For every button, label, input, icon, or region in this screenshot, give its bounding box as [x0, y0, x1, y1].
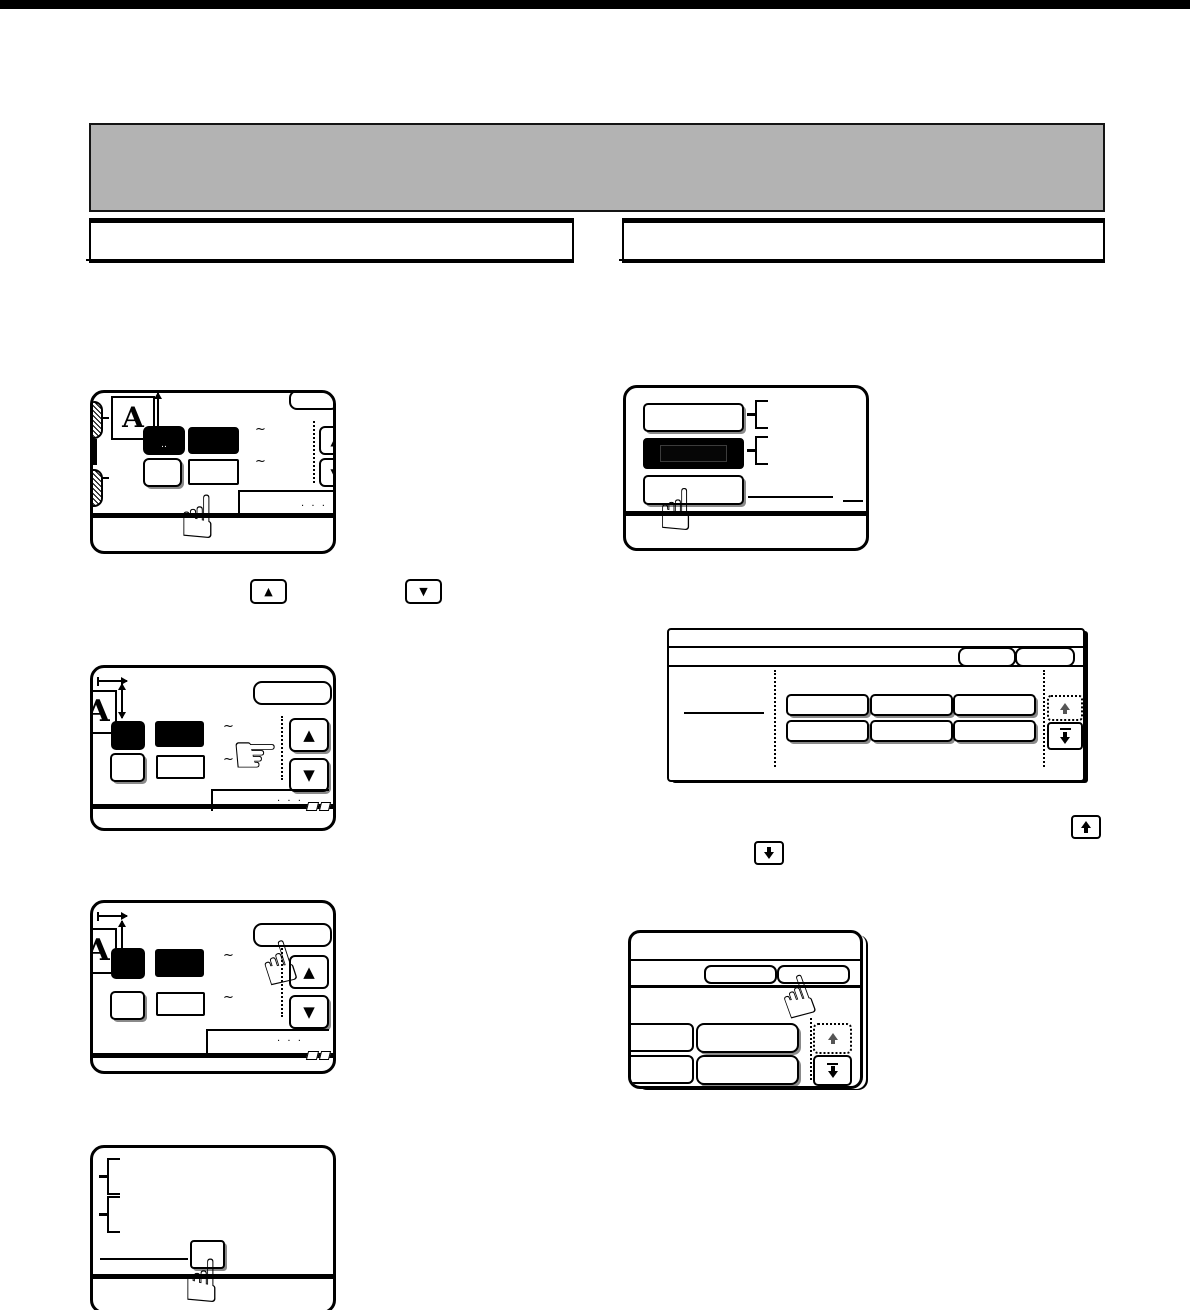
ellipsis-marks: . . .	[301, 499, 327, 509]
print-artifact	[319, 802, 331, 811]
touch-screen-diagram-5: ☝	[623, 385, 869, 551]
header-key-1	[958, 647, 1016, 667]
print-artifact	[319, 1051, 331, 1060]
up-triangle-icon: ▲	[303, 728, 315, 743]
up-triangle-icon: ▲	[303, 965, 315, 980]
screen-divider-line	[93, 1053, 333, 1058]
header-key-2	[1015, 647, 1075, 667]
header-rule-bottom	[669, 665, 1083, 667]
inline-scroll-up-key-icon	[1071, 815, 1101, 839]
decrease-button: ▼	[289, 758, 329, 792]
up-arrow-icon	[828, 1033, 838, 1044]
list-key	[870, 694, 953, 716]
up-arrow-icon	[1060, 703, 1070, 714]
column-header-underline-left	[86, 259, 573, 261]
tilde-mark: ~	[255, 423, 266, 436]
dotted-divider-right	[1043, 670, 1045, 767]
print-artifact	[306, 1051, 319, 1060]
pointing-hand-icon: ☝	[658, 481, 693, 539]
pointing-hand-icon: ☝	[183, 1252, 220, 1310]
down-arrow-bar-icon	[1060, 728, 1071, 744]
scroll-up-button-disabled	[813, 1023, 852, 1054]
key-3	[110, 991, 145, 1020]
down-triangle-icon: ▼	[303, 768, 315, 783]
manual-page: A .. ~ ~ ▲ ▼ . . . ☝ ▲ ▼ A	[0, 0, 1190, 1310]
reference-bracket-2	[755, 436, 768, 465]
ellipsis-marks: . . .	[277, 1034, 303, 1044]
scroll-up-button-disabled	[1047, 695, 1083, 721]
dotted-divider	[313, 421, 315, 483]
list-key	[870, 720, 953, 742]
reference-bracket-1	[107, 1158, 120, 1195]
column-header-box-right	[622, 218, 1105, 263]
menu-key-2-selected	[643, 438, 744, 469]
scroll-up-button: ▲	[319, 426, 336, 455]
key-4	[156, 755, 205, 779]
down-triangle-icon: ▼	[330, 467, 336, 479]
edge-bar	[90, 439, 97, 465]
scroll-down-button	[1047, 722, 1083, 750]
touch-screen-diagram-7: ☝	[628, 930, 863, 1089]
selected-key-1: ..	[143, 426, 185, 455]
message-underline	[748, 496, 833, 498]
reference-bracket-1	[755, 400, 768, 429]
page-top-rule	[0, 0, 1190, 9]
dotted-divider	[281, 716, 283, 780]
column-header-box-left	[89, 218, 574, 263]
pointing-hand-icon: ☞	[231, 728, 279, 782]
dotted-divider-left	[774, 670, 776, 767]
list-key-clipped	[628, 1055, 694, 1084]
header-rule-top	[631, 959, 860, 961]
column-header-underline-right	[619, 259, 1104, 261]
header-key-1	[704, 965, 777, 984]
up-triangle-icon: ▲	[264, 586, 272, 597]
selected-key-2	[155, 721, 204, 747]
tilde-mark: ~	[255, 455, 266, 468]
key-4	[188, 459, 239, 485]
inline-up-key-icon: ▲	[250, 579, 287, 604]
ok-button	[253, 681, 332, 705]
header-rule-bottom	[631, 985, 860, 988]
touch-screen-diagram-3: A ~ ~ ▲ ▼ ☝ . . .	[90, 900, 336, 1074]
inline-scroll-down-key-icon	[754, 841, 784, 865]
selected-key-1	[111, 721, 145, 750]
down-arrow-icon	[764, 847, 774, 859]
ellipsis-marks: . . .	[277, 794, 303, 804]
pointing-hand-icon: ☝	[179, 488, 216, 548]
touch-screen-diagram-6	[667, 628, 1085, 782]
section-header-banner	[89, 123, 1105, 212]
selected-key-2	[188, 427, 239, 454]
dimension-arrow-horizontal	[97, 915, 127, 917]
print-artifact	[306, 802, 319, 811]
up-triangle-icon: ▲	[330, 435, 336, 447]
list-key	[953, 694, 1036, 716]
selected-key-2	[155, 949, 204, 977]
key-3	[110, 753, 145, 782]
screen-divider-line	[93, 804, 333, 809]
key-3	[143, 458, 182, 487]
list-key	[696, 1023, 799, 1053]
list-key	[786, 720, 869, 742]
label-underline	[684, 712, 764, 714]
edge-tab-bottom	[90, 469, 103, 507]
touch-screen-diagram-4: ☝	[90, 1145, 336, 1310]
tilde-mark: ~	[223, 949, 234, 962]
message-tab	[206, 1029, 329, 1053]
dimension-arrow-vertical	[121, 684, 123, 718]
up-arrow-icon	[1081, 821, 1091, 833]
dimension-arrow-horizontal	[97, 680, 127, 682]
edge-tick	[101, 477, 109, 479]
decrease-button: ▼	[289, 995, 329, 1029]
touch-screen-diagram-1: A .. ~ ~ ▲ ▼ . . . ☝	[90, 390, 336, 554]
increase-button: ▲	[289, 718, 329, 752]
touch-screen-diagram-2: A ~ ~ ▲ ▼ ☞ . . .	[90, 665, 336, 831]
edge-tab-top	[90, 401, 103, 439]
down-arrow-bar-icon	[827, 1063, 838, 1079]
scroll-down-button	[813, 1055, 852, 1086]
message-underline-short	[843, 500, 863, 502]
down-triangle-icon: ▼	[303, 1005, 315, 1020]
edge-tick	[101, 417, 109, 419]
key-4	[156, 992, 205, 1016]
list-key	[696, 1055, 799, 1085]
inline-down-key-icon: ▼	[405, 579, 442, 604]
list-key	[953, 720, 1036, 742]
down-triangle-icon: ▼	[419, 586, 427, 597]
tilde-mark: ~	[223, 991, 234, 1004]
selected-key-inner	[660, 445, 727, 462]
scroll-down-button: ▼	[319, 458, 336, 487]
list-key	[786, 694, 869, 716]
selected-key-1	[111, 948, 145, 979]
message-underline	[100, 1258, 188, 1260]
top-tab	[289, 390, 336, 410]
list-key-clipped	[628, 1023, 694, 1052]
reference-bracket-2	[107, 1196, 120, 1233]
key-dots: ..	[161, 441, 167, 450]
menu-key-1	[643, 403, 744, 432]
